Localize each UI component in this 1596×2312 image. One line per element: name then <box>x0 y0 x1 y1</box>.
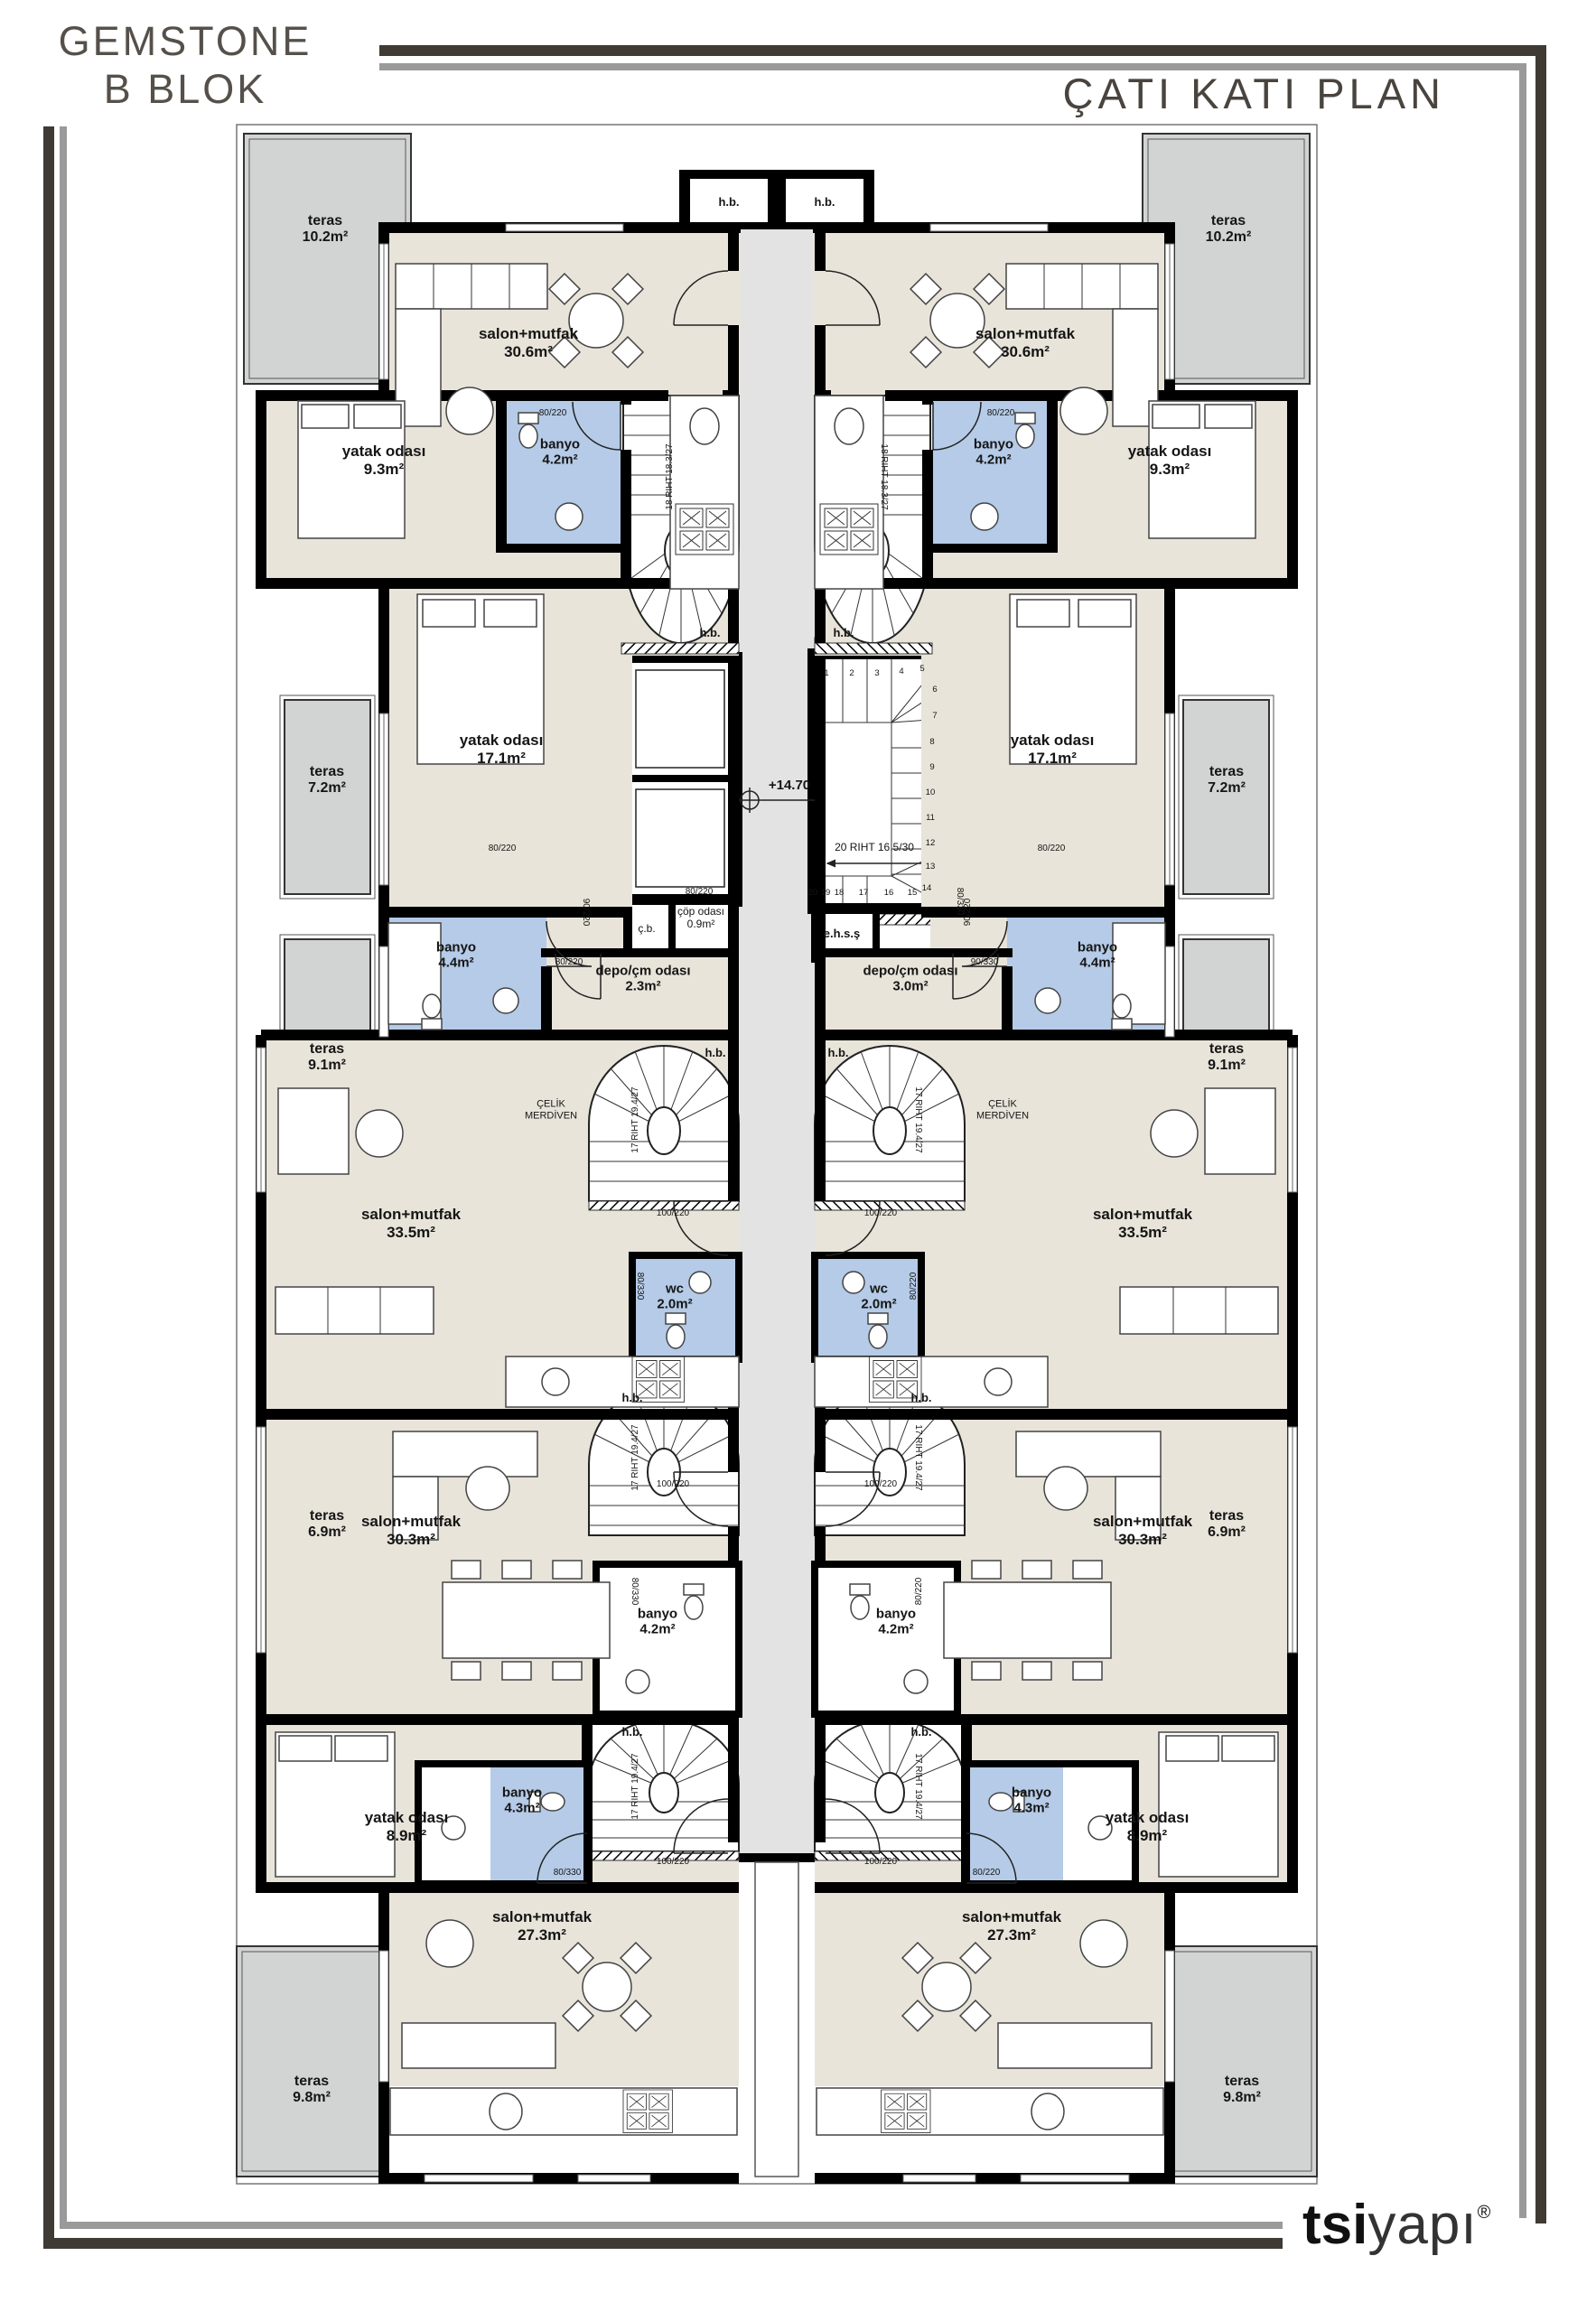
dim-80-330-banyo42-left: 80/330 <box>630 1578 639 1606</box>
hb-bottom-right: h.b. <box>910 1725 931 1739</box>
banyo-4-2-low-right: banyo4.2m² <box>876 1606 916 1636</box>
banyo-4-4-right: banyo4.4m² <box>1078 939 1117 970</box>
elevation-label: +14.70 <box>769 778 810 793</box>
duplex-stair-lower <box>589 1386 739 1535</box>
dim-80-220-banyo43-right: 80/220 <box>973 1868 1001 1878</box>
stair-step-number: 20 <box>808 888 818 898</box>
stair17-low-right-label: 17 RIHT 19.4/27 <box>913 1424 923 1491</box>
stair17-mid-left-label: 17 RIHT 19.4/27 <box>630 1086 640 1153</box>
corridor-end-wall <box>735 1853 818 1862</box>
stair18-label-left: 18 RIHT 18.3/27 <box>665 443 675 510</box>
apartments-right <box>813 134 1317 2184</box>
stair-step-number: 9 <box>929 762 934 772</box>
main-stair-label: 20 RIHT 16.5/30 <box>835 841 914 853</box>
stair-step-number: 10 <box>926 788 936 797</box>
stair17-mid-right-label: 17 RIHT 19.4/27 <box>913 1086 923 1153</box>
stair-step-number: 15 <box>908 888 918 898</box>
teras-9-1-left: teras9.1m² <box>308 1041 346 1073</box>
stair-step-number: 14 <box>922 883 932 893</box>
dim-100-220-mid-right: 100/220 <box>864 1208 898 1218</box>
stair-step-number: 4 <box>899 667 903 676</box>
stair-step-number: 19 <box>821 888 831 898</box>
dim-80-220-depo-left: 80/220 <box>555 957 583 967</box>
dim-100-220-mid-left: 100/220 <box>657 1208 690 1218</box>
corridor <box>739 228 815 1853</box>
hb-low-left: h.b. <box>621 1391 642 1404</box>
floor-plan-page: GEMSTONE B BLOK ÇATI KATI PLAN tsiyapı® <box>0 0 1596 2312</box>
stair-step-number: 16 <box>884 888 894 898</box>
teras-7-2-left: teras7.2m² <box>308 764 346 796</box>
floor-plan-drawing: teras10.2m²teras10.2m²salon+mutfak30.6m²… <box>0 0 1596 2312</box>
hb-low-right: h.b. <box>910 1391 931 1404</box>
dim-80-330-banyo43-left: 80/330 <box>554 1868 582 1878</box>
stair-step-number: 6 <box>932 685 937 695</box>
teras-10-2-right: teras10.2m² <box>1206 213 1252 245</box>
dim-80-220-banyo-top-right: 80/220 <box>987 408 1015 418</box>
celik-merdiven-stair <box>589 1046 739 1210</box>
stair17-bot-right-label: 17 RIHT 19.4/27 <box>913 1753 923 1820</box>
banyo-4-3-right: banyo4.3m² <box>1012 1785 1051 1815</box>
teras-6-9-right: teras6.9m² <box>1208 1508 1246 1540</box>
banyo-4-2-low-left: banyo4.2m² <box>638 1606 677 1636</box>
hb-stair18-left: h.b. <box>699 626 720 639</box>
dim-80-220-wc-right: 80/220 <box>909 1272 919 1300</box>
hb-top-left: h.b. <box>718 195 739 209</box>
dim-80-220-banyo42-right: 80/220 <box>914 1577 924 1605</box>
teras-10-2-left: teras10.2m² <box>303 213 349 245</box>
stair-step-number: 7 <box>932 711 937 721</box>
dim-100-220-bot-left: 100/220 <box>657 1857 690 1867</box>
stair-step-number: 2 <box>849 668 854 678</box>
stair-step-number: 11 <box>926 813 935 823</box>
stair-step-number: 12 <box>926 838 936 848</box>
stair-step-number: 5 <box>919 664 924 674</box>
dim-80-220-banyo-top-left: 80/220 <box>539 408 567 418</box>
dim-90-220-left: 90/220 <box>581 899 591 927</box>
teras-6-9-left: teras6.9m² <box>308 1508 346 1540</box>
teras-9-1-right: teras9.1m² <box>1208 1041 1246 1073</box>
stair-step-number: 3 <box>874 668 879 678</box>
stair17-bot-left-label: 17 RIHT 19.4/27 <box>630 1753 640 1820</box>
stair-step-number: 18 <box>835 888 845 898</box>
hb-bottom-left: h.b. <box>621 1725 642 1739</box>
dim-100-220-bot-right: 100/220 <box>864 1857 898 1867</box>
stair-step-number: 8 <box>929 737 934 747</box>
cb-room-label: ç.b. <box>638 922 655 935</box>
banyo-4-2-top-left: banyo4.2m² <box>540 436 580 467</box>
hb-stair18-right: h.b. <box>833 626 854 639</box>
bottom-light-shaft <box>755 1862 798 2177</box>
dim-80-330-stairhall: 80/330 <box>955 888 965 916</box>
stair18-label-right: 18 RIHT 18.3/27 <box>879 443 889 510</box>
stair17-low-left-label: 17 RIHT 19.4/27 <box>630 1424 640 1491</box>
duplex-stair-bottom <box>589 1720 739 1860</box>
banyo-4-2-top-right: banyo4.2m² <box>974 436 1013 467</box>
apartments-left <box>237 134 741 2184</box>
stair-step-number: 1 <box>824 668 828 678</box>
elevator-shafts <box>618 652 742 907</box>
dim-80-220-banyo44-right: 80/220 <box>1038 844 1066 853</box>
teras-9-8-left: teras9.8m² <box>293 2074 331 2105</box>
stair-step-number: 17 <box>859 888 869 898</box>
dim-100-220-low-right: 100/220 <box>864 1479 898 1489</box>
teras-7-2-right: teras7.2m² <box>1208 764 1246 796</box>
banyo-4-3-left: banyo4.3m² <box>502 1785 542 1815</box>
teras-9-8-right: teras9.8m² <box>1223 2074 1261 2105</box>
dim-80-220-cop: 80/220 <box>686 887 714 897</box>
dim-80-220-banyo44-left: 80/220 <box>489 844 517 853</box>
hb-mid-left: h.b. <box>705 1046 725 1059</box>
dim-80-330-wc-left: 80/330 <box>635 1273 645 1300</box>
hb-shaft-top <box>679 170 874 229</box>
stair-step-number: 13 <box>926 862 936 872</box>
ehss-label: e.h.s.ş <box>824 927 860 940</box>
hb-mid-right: h.b. <box>827 1046 848 1059</box>
dim-100-220-low-left: 100/220 <box>657 1479 690 1489</box>
hb-top-right: h.b. <box>814 195 835 209</box>
dim-90-330-depo-right: 90/330 <box>971 957 999 967</box>
banyo-4-4-left: banyo4.4m² <box>436 939 476 970</box>
